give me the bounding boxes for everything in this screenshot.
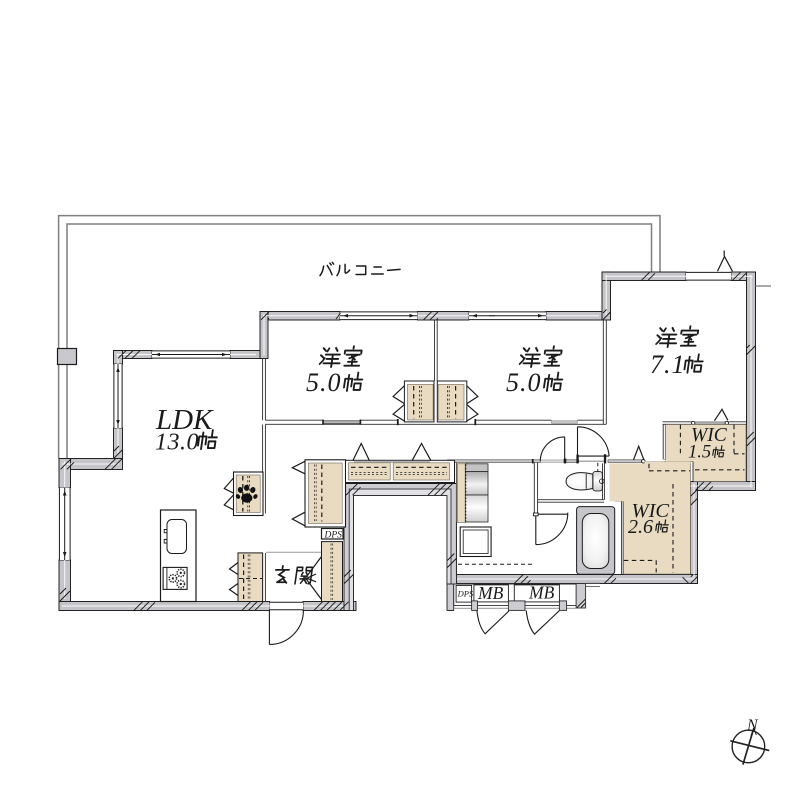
svg-text:MB: MB bbox=[528, 582, 555, 602]
svg-text:MB: MB bbox=[477, 583, 504, 603]
svg-text:2.6: 2.6 bbox=[628, 516, 653, 538]
svg-text:5.0: 5.0 bbox=[506, 368, 542, 397]
svg-text:DPS: DPS bbox=[457, 589, 474, 599]
svg-text:7.1: 7.1 bbox=[650, 350, 686, 379]
svg-text:DPS: DPS bbox=[324, 530, 343, 540]
svg-text:5.0: 5.0 bbox=[306, 368, 342, 397]
svg-text:N: N bbox=[746, 717, 759, 734]
svg-text:13.0: 13.0 bbox=[155, 430, 199, 456]
svg-text:1.5: 1.5 bbox=[688, 442, 711, 462]
